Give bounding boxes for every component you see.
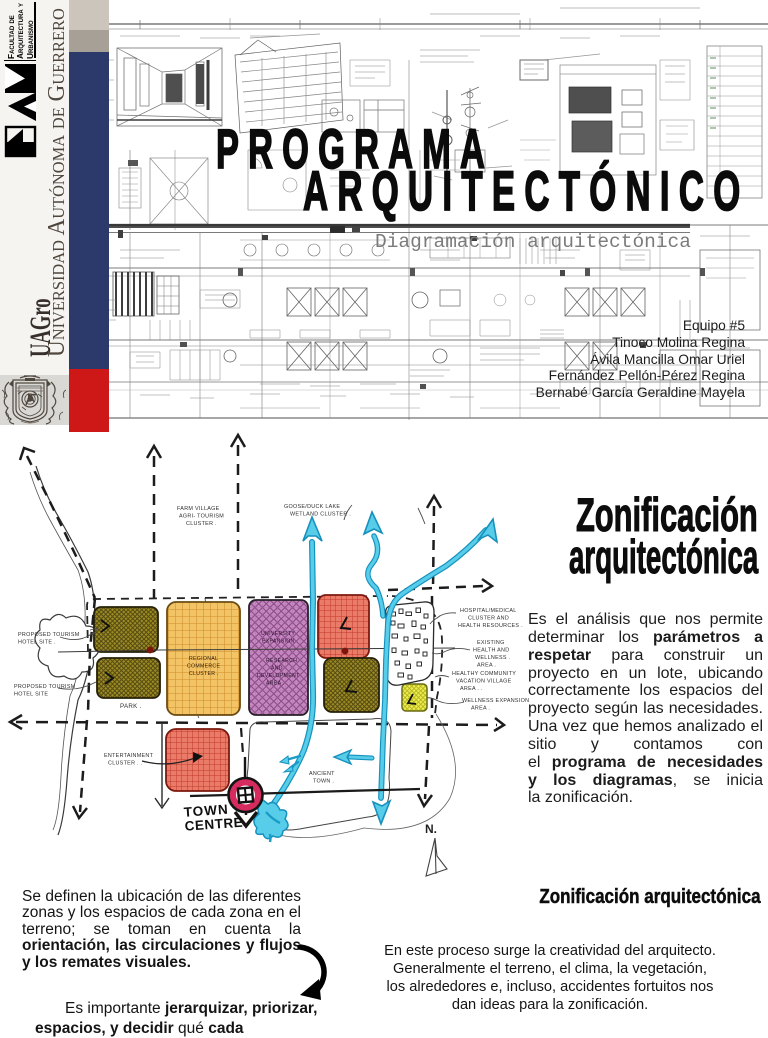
svg-text:TOWN .: TOWN .: [313, 779, 334, 785]
svg-text:HOTEL SITE: HOTEL SITE: [14, 692, 48, 698]
svg-text:HOTEL SITE .: HOTEL SITE .: [18, 640, 56, 646]
svg-text:AGRI- TOURISM: AGRI- TOURISM: [179, 514, 224, 520]
svg-text:GOOSE/DUCK LAKE: GOOSE/DUCK LAKE: [284, 504, 340, 510]
svg-text:AREA .: AREA .: [477, 663, 496, 669]
svg-text:PROPOSED TOURISM: PROPOSED TOURISM: [14, 684, 76, 690]
svg-text:COMMERCE: COMMERCE: [187, 664, 220, 670]
svg-text:FARM VILLAGE: FARM VILLAGE: [177, 506, 220, 512]
svg-text:PARK .: PARK .: [120, 703, 142, 710]
svg-text:AND: AND: [271, 666, 283, 672]
svg-text:EXPANSION: EXPANSION: [262, 639, 295, 645]
svg-text:HEALTH RESOURCES .: HEALTH RESOURCES .: [458, 623, 523, 629]
svg-text:N.: N.: [425, 822, 437, 836]
svg-text:CENTRE: CENTRE: [184, 815, 243, 834]
svg-text:HOSPITAL/MEDICAL: HOSPITAL/MEDICAL: [460, 608, 517, 614]
svg-text:REGIONAL: REGIONAL: [189, 656, 218, 662]
svg-text:PROPOSED TOURISM: PROPOSED TOURISM: [18, 632, 80, 638]
svg-text:CLUSTER .: CLUSTER .: [189, 671, 219, 677]
svg-text:WETLAND CLUSTER .: WETLAND CLUSTER .: [290, 512, 351, 518]
svg-text:CLUSTER .: CLUSTER .: [186, 521, 217, 527]
svg-text:UNIVERSITY: UNIVERSITY: [261, 631, 295, 637]
svg-text:WELLNESS .: WELLNESS .: [475, 655, 510, 661]
svg-text:AREA . .: AREA . .: [460, 686, 483, 692]
svg-text:ANCIENT: ANCIENT: [309, 771, 335, 777]
svg-text:CLUSTER AND: CLUSTER AND: [468, 616, 509, 622]
svg-text:WELLNESS EXPANSION: WELLNESS EXPANSION: [462, 698, 529, 704]
svg-text:DEVELOPMENT: DEVELOPMENT: [257, 673, 300, 679]
svg-text:VACATION VILLAGE: VACATION VILLAGE: [456, 679, 512, 685]
svg-text:EXISTING: EXISTING: [477, 640, 505, 646]
svg-text:ENTERTAINMENT: ENTERTAINMENT: [104, 753, 154, 759]
svg-text:AREA .: AREA .: [471, 706, 490, 712]
svg-text:RESEARCH: RESEARCH: [266, 658, 297, 664]
svg-text:HEALTH AND: HEALTH AND: [473, 648, 509, 654]
svg-text:HEALTHY COMMUNITY: HEALTHY COMMUNITY: [452, 671, 516, 677]
svg-text:AREA .: AREA .: [266, 681, 285, 687]
svg-text:CLUSTER . .: CLUSTER . .: [108, 761, 142, 767]
